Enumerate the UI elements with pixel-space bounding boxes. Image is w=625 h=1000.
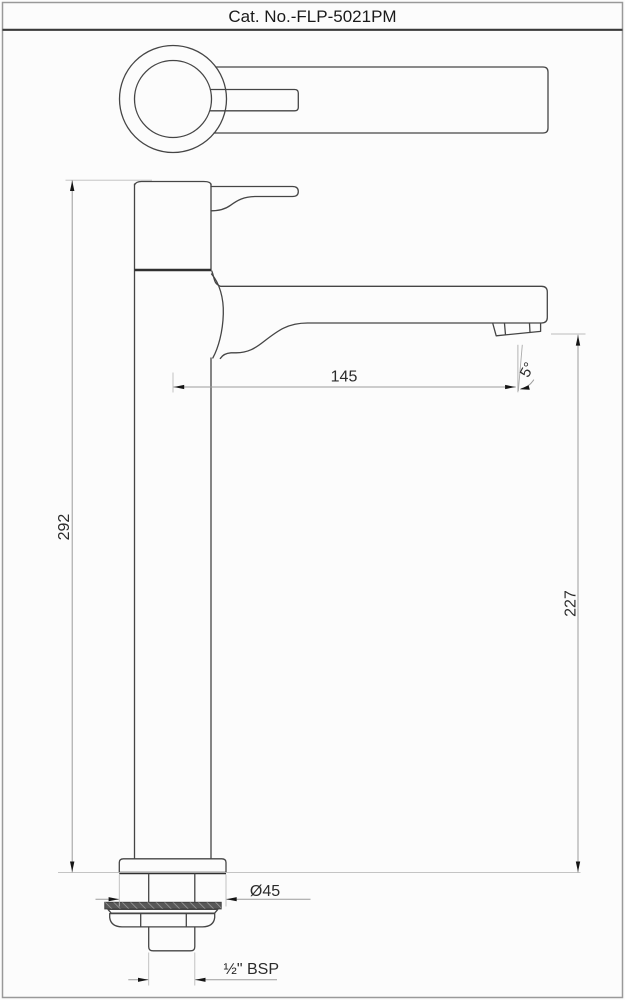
spout-outline	[212, 271, 548, 359]
dim-overall-height-label: 292	[56, 514, 73, 541]
arrow-down-icon	[70, 862, 74, 872]
arrow-right-icon	[505, 385, 515, 389]
arrow-right-icon	[138, 978, 148, 982]
dim-overall-height: 292	[56, 180, 152, 872]
spout-top-outline	[214, 67, 548, 133]
gasket	[108, 909, 218, 913]
handle-top-outline	[210, 90, 298, 111]
body-circle	[135, 61, 212, 138]
dim-spout-reach: 145	[173, 369, 516, 393]
arrow-left-icon	[226, 897, 236, 901]
aerator-detail-line	[505, 324, 506, 335]
page-border	[3, 3, 623, 998]
aerator-detail-line	[530, 324, 531, 333]
dim-spout-reach-label: 145	[331, 369, 358, 386]
arrow-angle-icon	[520, 385, 530, 390]
dim-spout-height: 227	[551, 334, 586, 872]
inlet-pipe	[149, 927, 195, 951]
arrow-up-icon	[70, 181, 74, 191]
drawing-title: Cat. No.-FLP-5021PM	[228, 7, 396, 26]
technical-drawing: Cat. No.-FLP-5021PM	[0, 0, 625, 1000]
dim-inlet-thread: ½" BSP	[128, 953, 279, 986]
dim-spout-angle: 5°	[517, 345, 539, 393]
arrow-right-icon	[109, 897, 119, 901]
arrow-up-icon	[576, 335, 580, 345]
drawing-sheet: Cat. No.-FLP-5021PM	[0, 0, 625, 1000]
body-top-edge	[135, 182, 212, 186]
dim-inlet-thread-label: ½" BSP	[224, 961, 279, 978]
washer-hatch	[105, 902, 221, 909]
arrow-left-icon	[174, 385, 184, 389]
dim-base-diameter: Ø45	[96, 875, 311, 907]
aerator	[493, 324, 541, 336]
hex-nut	[110, 914, 215, 927]
dim-spout-height-label: 227	[563, 590, 580, 617]
front-view	[105, 182, 548, 951]
arrow-down-icon	[576, 862, 580, 872]
handle-outline	[211, 187, 298, 211]
top-view	[120, 46, 549, 153]
base-flange	[119, 859, 226, 873]
dim-base-diameter-label: Ø45	[250, 883, 280, 900]
arrow-left-icon	[195, 978, 205, 982]
flange-circle	[120, 46, 227, 153]
